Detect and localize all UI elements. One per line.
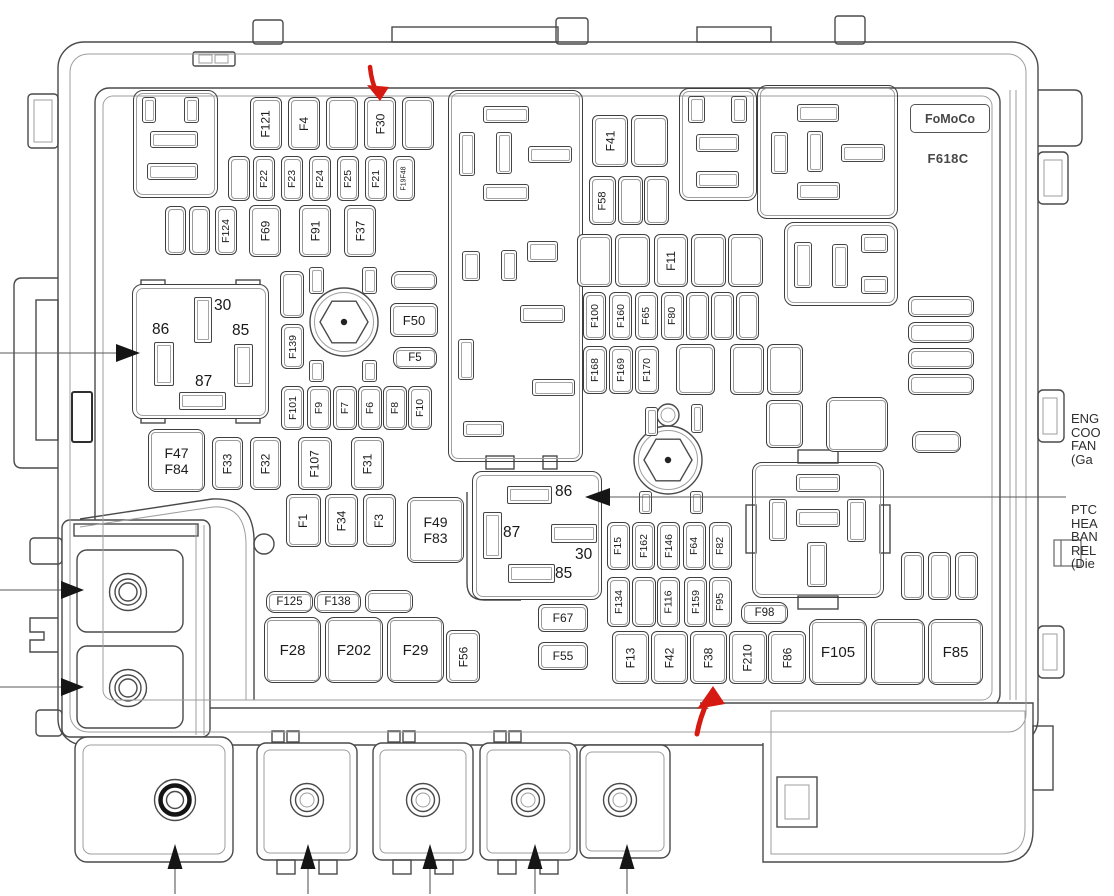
fuse-label: F32: [259, 453, 273, 474]
terminal-slot: [309, 360, 324, 382]
fuse-label: F22: [258, 169, 270, 187]
terminal-slot: [794, 242, 812, 288]
fuse-box-diagram: F121F4F30F22F23F24F25F21F19F48F124F69F91…: [0, 0, 1114, 896]
fuse-f21: F21: [365, 156, 387, 201]
empty-fuse-slot: [766, 400, 803, 448]
fuse-f160: F160: [609, 292, 632, 340]
fuse-f65: F65: [635, 292, 658, 340]
fuse-f7: F7: [333, 386, 357, 430]
fuse-f64: F64: [683, 522, 706, 570]
fuse-f29: F29: [387, 617, 444, 683]
fuse-label: F5: [408, 352, 421, 364]
fuse-label: F82: [715, 537, 727, 555]
relay-pin-label-85: 85: [555, 565, 572, 583]
fuse-f138: F138: [314, 591, 361, 613]
terminal-slot: [690, 491, 703, 514]
terminal-slot: [797, 182, 840, 200]
fuse-label: F3: [372, 513, 386, 527]
fuse-f28: F28: [264, 617, 321, 683]
empty-fuse-slot: [686, 292, 709, 340]
fuse-label: F24: [314, 169, 326, 187]
fuse-label: F6: [364, 402, 376, 414]
empty-fuse-slot: [711, 292, 734, 340]
fuse-f23: F23: [281, 156, 303, 201]
fuse-f210: F210: [729, 631, 767, 684]
terminal-slot: [771, 132, 788, 174]
fuse-f13: F13: [612, 631, 649, 684]
relay-pin-slot-30: [194, 297, 212, 343]
relay-pin-label-30: 30: [575, 546, 592, 564]
callout-ptc-heater-relay: PTC HEA BAN REL (Die: [1071, 503, 1098, 571]
fuse-f56: F56: [446, 630, 480, 683]
fuse-label: F55: [553, 649, 574, 663]
terminal-slot: [807, 131, 823, 172]
fuse-label: F169: [615, 358, 627, 382]
fuse-label: F160: [615, 304, 627, 328]
fuse-f105: F105: [809, 619, 867, 685]
fuse-f202: F202: [325, 617, 383, 683]
empty-fuse-slot: [691, 234, 726, 287]
fuse-f15: F15: [607, 522, 630, 570]
terminal-slot: [688, 96, 705, 123]
fuse-f47-f84: F47F84: [148, 429, 205, 492]
fuse-label: F98: [755, 607, 775, 619]
empty-fuse-slot: [955, 552, 978, 600]
fuse-label: F13: [624, 647, 638, 668]
fuse-f159: F159: [684, 577, 707, 627]
terminal-slot: [841, 144, 885, 162]
fuse-label: F170: [641, 358, 653, 382]
fuse-label: F202: [337, 642, 371, 659]
fuse-f58: F58: [589, 176, 616, 225]
fuse-f107: F107: [298, 437, 332, 490]
relay-pin-slot-85: [508, 564, 555, 583]
fuse-f50: F50: [390, 303, 438, 337]
fuse-f146: F146: [657, 522, 680, 570]
fuse-label: F25: [342, 169, 354, 187]
empty-fuse-slot: [928, 552, 951, 600]
fuse-label: F116: [663, 590, 675, 613]
empty-fuse-slot: [908, 374, 974, 395]
fuse-f19f48: F19F48: [393, 156, 415, 201]
fuse-label: F50: [403, 313, 425, 328]
fuse-f34: F34: [325, 494, 358, 547]
empty-fuse-slot: [644, 176, 669, 225]
relay-pin-label-85: 85: [232, 322, 249, 340]
fuse-f25: F25: [337, 156, 359, 201]
fuse-f100: F100: [583, 292, 606, 340]
terminal-slot: [463, 421, 504, 437]
fuse-label: F31: [361, 453, 375, 474]
fuse-label: F134: [613, 590, 625, 614]
fuse-label: F138: [324, 596, 350, 608]
fuse-label: F95: [715, 593, 727, 611]
fuse-label: F37: [353, 221, 367, 242]
fuse-label: F56: [456, 646, 470, 667]
fuse-label: F1: [296, 513, 310, 527]
terminal-slot: [459, 132, 475, 176]
empty-fuse-slot: [365, 590, 413, 613]
fuse-f5: F5: [393, 347, 437, 369]
fuse-label: F9: [313, 402, 325, 414]
fuse-label: F33: [221, 453, 235, 474]
fuse-f49-f83: F49F83: [407, 497, 464, 563]
fuse-label: F4: [297, 116, 311, 130]
relay-pin-label-87: 87: [503, 524, 520, 542]
fuse-label: F125: [276, 596, 302, 608]
fuse-f124: F124: [215, 206, 237, 255]
fuse-label: F23: [286, 169, 298, 187]
empty-fuse-slot: [908, 296, 974, 317]
fuse-label: F105: [821, 644, 855, 661]
fomoco-logo-badge: FoMoCo: [910, 104, 990, 133]
terminal-slot: [861, 276, 888, 294]
fuse-label: F67: [553, 611, 574, 625]
terminal-slot: [696, 171, 739, 188]
fuse-label: F58: [597, 191, 609, 210]
fuse-label: F49F83: [423, 514, 447, 546]
fuse-f125: F125: [266, 591, 313, 613]
terminal-slot: [528, 146, 572, 163]
fuse-label: F34: [335, 510, 349, 531]
fuse-label: F42: [663, 647, 677, 668]
terminal-slot: [147, 163, 198, 180]
terminal-slot: [731, 96, 747, 123]
fuse-f169: F169: [609, 346, 633, 394]
terminal-slot: [832, 244, 848, 288]
relay-pin-slot-86: [154, 342, 174, 386]
fuse-f162: F162: [632, 522, 655, 570]
relay-middle: 86 87 30 85: [472, 471, 602, 600]
fuse-label: F146: [663, 534, 675, 558]
fuse-f134: F134: [607, 577, 630, 627]
fuse-f82: F82: [709, 522, 732, 570]
terminal-slot: [184, 97, 199, 123]
fuse-f42: F42: [651, 631, 688, 684]
fuse-label: F124: [220, 219, 232, 243]
fuse-label: F86: [780, 647, 794, 668]
fuse-label: F10: [414, 399, 426, 417]
terminal-slot: [861, 234, 888, 253]
terminal-slot: [796, 474, 840, 492]
terminal-slot: [462, 251, 480, 281]
terminal-slot: [769, 499, 787, 541]
terminal-slot: [483, 184, 529, 201]
fuse-label: F7: [339, 402, 351, 414]
fuse-label: F159: [690, 590, 702, 614]
fuse-f10: F10: [408, 386, 432, 430]
fuse-label: F101: [287, 396, 299, 420]
relay-pin-label-87: 87: [195, 373, 212, 391]
empty-fuse-slot: [391, 271, 437, 290]
terminal-slot: [142, 97, 156, 123]
empty-fuse-slot: [736, 292, 759, 340]
fuse-f91: F91: [299, 205, 331, 257]
part-code-label: F618C: [913, 151, 983, 166]
fuse-f31: F31: [351, 437, 384, 490]
fuse-f101: F101: [281, 386, 304, 430]
empty-fuse-slot: [632, 577, 656, 627]
fuse-f3: F3: [363, 494, 396, 547]
fuse-label: F91: [308, 221, 322, 242]
terminal-slot: [847, 499, 866, 542]
fuse-label: F30: [373, 113, 387, 134]
empty-fuse-slot: [228, 156, 250, 201]
relay-pin-slot-87: [179, 392, 226, 410]
fuse-label: F15: [613, 537, 625, 555]
terminal-slot: [458, 339, 474, 380]
fuse-label: F21: [370, 169, 382, 187]
relay-pin-label-30: 30: [214, 297, 231, 315]
empty-fuse-slot: [676, 344, 715, 395]
fuse-f37: F37: [344, 205, 376, 257]
empty-fuse-slot: [326, 97, 358, 150]
terminal-slot: [797, 104, 839, 122]
empty-fuse-slot: [728, 234, 763, 287]
relay-pin-label-86: 86: [152, 321, 169, 339]
fuse-f121: F121: [250, 97, 282, 150]
terminal-slot: [483, 106, 529, 123]
fuse-label: F41: [603, 131, 617, 152]
fuse-grid: F121F4F30F22F23F24F25F21F19F48F124F69F91…: [0, 0, 1114, 896]
fuse-label: F80: [667, 307, 679, 325]
fuse-label: F8: [389, 402, 401, 414]
fuse-f85: F85: [928, 619, 983, 685]
empty-fuse-slot: [908, 348, 974, 369]
relay-pin-slot-87: [483, 512, 502, 559]
empty-fuse-slot: [871, 619, 925, 685]
fuse-f67: F67: [538, 604, 588, 632]
fuse-label: F65: [641, 307, 653, 325]
fuse-f98: F98: [741, 602, 788, 624]
fuse-f86: F86: [768, 631, 806, 684]
empty-fuse-slot: [618, 176, 643, 225]
fuse-label: F85: [943, 644, 969, 661]
fuse-label: F47F84: [164, 445, 188, 477]
terminal-slot: [691, 404, 703, 433]
fuse-f22: F22: [253, 156, 275, 201]
empty-fuse-slot: [577, 234, 612, 287]
empty-fuse-slot: [767, 344, 803, 395]
fuse-f170: F170: [635, 346, 659, 394]
fuse-f116: F116: [657, 577, 680, 627]
empty-fuse-slot: [402, 97, 434, 150]
fuse-f55: F55: [538, 642, 588, 670]
terminal-slot: [639, 491, 652, 514]
terminal-slot: [501, 250, 517, 281]
fuse-label: F28: [280, 642, 306, 659]
empty-fuse-slot: [901, 552, 924, 600]
fuse-label: F38: [702, 647, 716, 668]
terminal-slot: [527, 241, 558, 262]
fuse-f32: F32: [250, 437, 281, 490]
fuse-label: F11: [664, 251, 678, 271]
terminal-slot: [796, 509, 840, 527]
terminal-slot: [362, 360, 377, 382]
fuse-label: F121: [259, 110, 273, 137]
empty-fuse-slot: [730, 344, 764, 395]
fuse-f8: F8: [383, 386, 407, 430]
terminal-slot: [696, 134, 739, 152]
empty-fuse-slot: [189, 206, 210, 255]
empty-fuse-slot: [615, 234, 650, 287]
fuse-f69: F69: [249, 205, 281, 257]
empty-fuse-slot: [280, 271, 304, 318]
fuse-f11: F11: [654, 234, 688, 287]
empty-fuse-slot: [908, 322, 974, 343]
fuse-label: F29: [403, 642, 429, 659]
fuse-label: F139: [287, 335, 299, 359]
fuse-label: F210: [741, 644, 755, 671]
empty-fuse-slot: [826, 397, 888, 452]
terminal-slot: [520, 305, 565, 323]
empty-fuse-slot: [631, 115, 668, 167]
terminal-slot: [150, 131, 198, 148]
fuse-f168: F168: [583, 346, 607, 394]
fuse-f38: F38: [690, 631, 727, 684]
fuse-label: F162: [638, 534, 650, 558]
empty-fuse-slot: [165, 206, 186, 255]
fuse-label: F69: [258, 221, 272, 242]
terminal-slot: [496, 132, 512, 174]
relay-pin-slot-30: [551, 524, 597, 543]
relay-left: 30 86 85 87: [132, 284, 269, 419]
fuse-f41: F41: [592, 115, 628, 167]
terminal-slot: [645, 407, 658, 436]
fuse-label: F19F48: [401, 166, 408, 190]
terminal-slot: [807, 542, 827, 587]
fuse-label: F100: [589, 304, 601, 328]
fuse-label: F168: [589, 358, 601, 382]
fuse-f95: F95: [709, 577, 732, 627]
relay-pin-label-86: 86: [555, 483, 572, 501]
fuse-f30: F30: [364, 97, 396, 150]
fuse-f6: F6: [358, 386, 382, 430]
fuse-f1: F1: [286, 494, 321, 547]
terminal-slot: [309, 267, 324, 294]
terminal-slot: [532, 379, 575, 396]
relay-pin-slot-85: [234, 344, 253, 387]
fuse-f4: F4: [288, 97, 320, 150]
terminal-slot: [362, 267, 377, 294]
fuse-label: F64: [689, 537, 701, 555]
fuse-f9: F9: [307, 386, 331, 430]
empty-fuse-slot: [912, 431, 961, 453]
callout-engine-cooling-fan: ENG COO FAN (Ga: [1071, 412, 1101, 466]
fuse-f139: F139: [281, 324, 304, 369]
fuse-f24: F24: [309, 156, 331, 201]
fuse-f33: F33: [212, 437, 243, 490]
fuse-f80: F80: [661, 292, 684, 340]
relay-pin-slot-86: [507, 486, 552, 504]
fuse-label: F107: [308, 450, 322, 477]
